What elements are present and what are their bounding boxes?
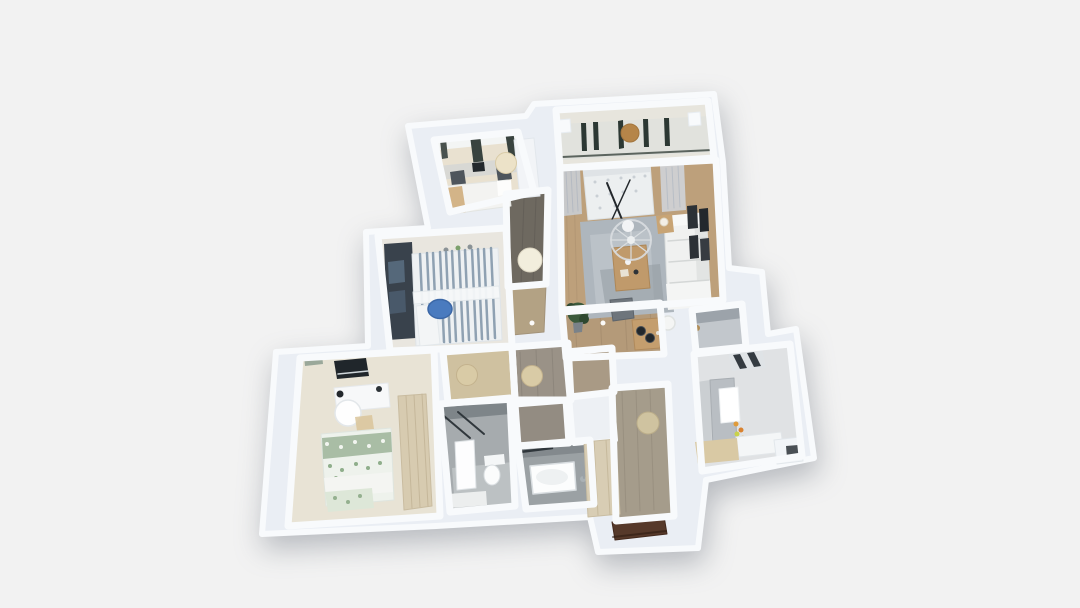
spotlight [601, 321, 606, 326]
bedroom2-shelf-item [468, 245, 473, 250]
floor-plan-svg [0, 0, 1080, 608]
balcony-mullion [664, 118, 670, 146]
bedroom2-wardrobe-panel [389, 290, 406, 314]
kitchen-window [719, 387, 740, 423]
bedroom3-pillow [325, 488, 374, 512]
ceiling-lamp-corridor [518, 248, 542, 272]
bedroom3-chair [355, 415, 374, 431]
plant-pot [573, 322, 583, 333]
bed-floral-dot [353, 440, 357, 444]
study-monitor [472, 162, 485, 172]
quilt-dot [633, 176, 636, 179]
bed-leaf-dot [378, 461, 382, 465]
ceiling-lamp-hall [457, 365, 478, 386]
fruit [734, 422, 739, 427]
bed-leaf-dot [354, 462, 358, 466]
bedroom2-shelf-item [456, 246, 461, 251]
wall-frame [699, 208, 709, 232]
ceiling-lamp-study [496, 153, 517, 174]
bathroom1-mirror [455, 440, 476, 490]
chandelier-center [627, 236, 635, 244]
bedroom2-ottoman [428, 300, 452, 319]
quilt-dot [596, 195, 599, 198]
spotlight [530, 321, 535, 326]
bed-leaf-dot [340, 468, 344, 472]
bed-floral-dot [339, 445, 343, 449]
pillow-dot [346, 500, 350, 504]
wall-frame [689, 235, 699, 259]
speaker [637, 327, 646, 336]
bathroom1-vanity [448, 491, 487, 508]
corridor-floor [506, 190, 548, 287]
balcony-mullion [593, 122, 599, 150]
quilt-dot [620, 177, 623, 180]
toilet-tank [484, 454, 505, 466]
bed-floral-dot [367, 444, 371, 448]
quilt-dot [607, 179, 610, 182]
side-table-lamp [660, 218, 668, 226]
audio-cabinet [632, 318, 660, 350]
floor-plan-3d-render [262, 94, 814, 552]
speaker [646, 334, 655, 343]
bedroom3-desk-item [376, 386, 382, 392]
study-chair [450, 170, 466, 186]
balcony-mullion [581, 123, 587, 151]
wall-frame [687, 205, 698, 229]
chandelier-shade [622, 220, 634, 232]
pillow-dot [358, 494, 362, 498]
table-tray [620, 269, 629, 277]
bedroom3-desk-lamp [337, 391, 344, 398]
corridor-door [510, 285, 546, 335]
ceiling-lamp-balcony [621, 124, 639, 142]
quilt-dot [635, 190, 638, 193]
table-item [634, 270, 639, 275]
bedroom2-wardrobe-panel [388, 260, 405, 284]
toilet [484, 465, 500, 485]
quilt-dot [594, 181, 597, 184]
balcony-post [688, 112, 701, 126]
ceiling-lamp-hall [522, 366, 543, 387]
bed-leaf-dot [366, 466, 370, 470]
fruit [739, 428, 744, 433]
balcony-mullion [643, 119, 649, 147]
bed-floral-dot [381, 439, 385, 443]
floor-plan-canvas [0, 0, 1080, 608]
bed-floral-dot [325, 442, 329, 446]
bed-leaf-dot [328, 464, 332, 468]
ceiling-lamp-entry [637, 412, 659, 434]
quilt-dot [599, 207, 602, 210]
fruit [735, 432, 740, 437]
hall-beige-floor [443, 347, 515, 403]
bathtub-inner [536, 469, 568, 485]
wall-frame [700, 238, 710, 261]
bedroom3-window [334, 358, 369, 379]
entry-floor [612, 384, 674, 521]
pillow-dot [333, 496, 337, 500]
quilt-dot [644, 175, 647, 178]
